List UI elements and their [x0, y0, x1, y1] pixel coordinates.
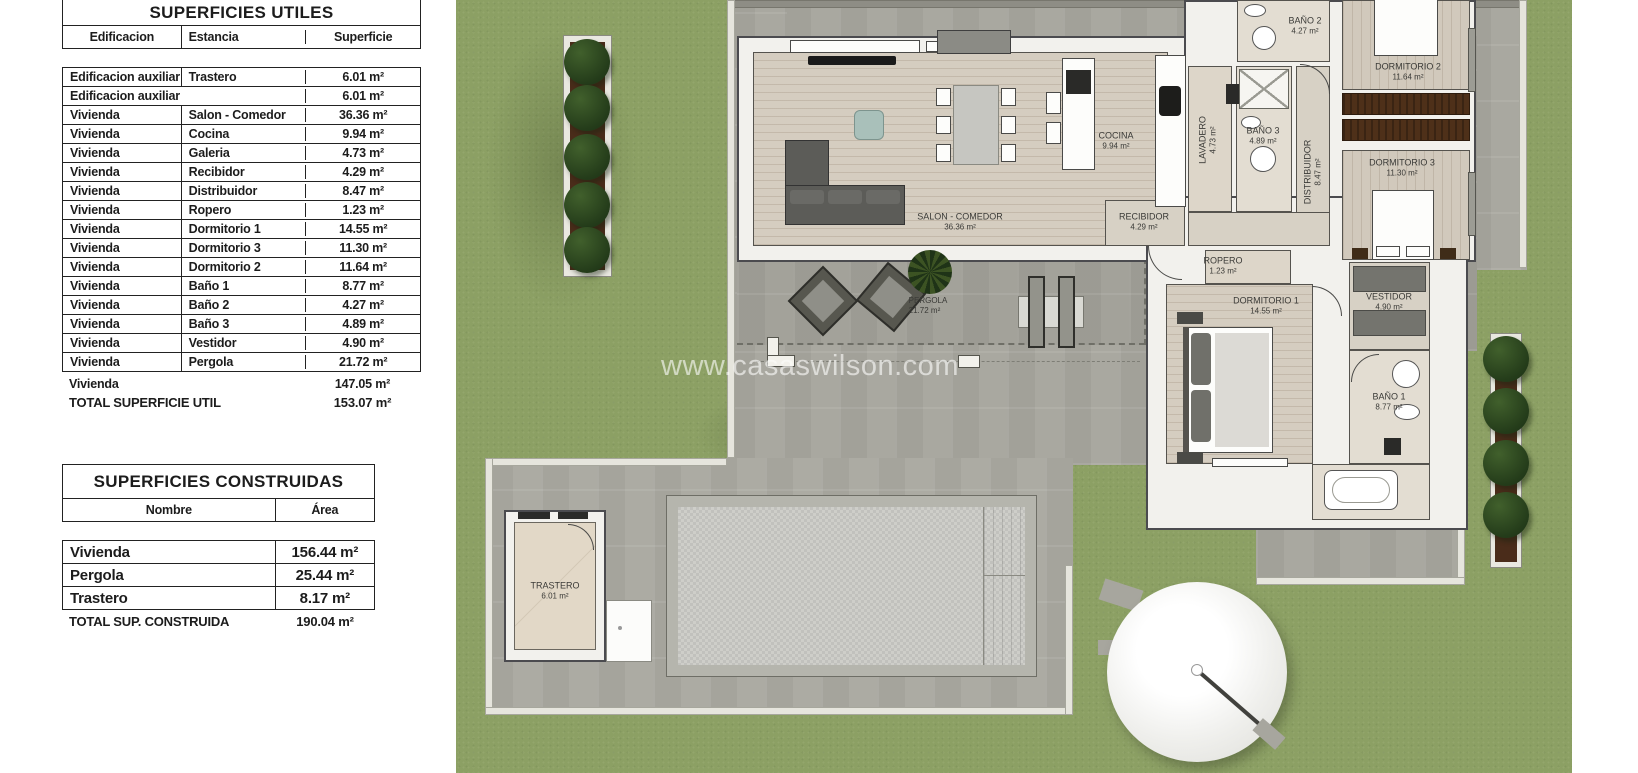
- total-value: 190.04 m²: [275, 614, 375, 629]
- table-row: ViviendaDormitorio 211.64 m²: [62, 257, 421, 277]
- room-area: 14.55 m²: [1233, 307, 1299, 317]
- cell-estancia: Cocina: [181, 125, 306, 143]
- cell-area: 8.17 m²: [275, 587, 374, 609]
- equipment-box: [606, 600, 652, 662]
- tree: [564, 134, 610, 180]
- cell-area: 156.44 m²: [275, 541, 374, 563]
- total-value: 153.07 m²: [305, 395, 420, 410]
- bar-stool: [1046, 122, 1061, 144]
- room-label-bano-2: BAÑO 2 4.27 m²: [1288, 15, 1321, 36]
- cell-estancia: Pergola: [181, 353, 306, 371]
- tree: [1483, 336, 1529, 382]
- room-name: DISTRIBUIDOR: [1302, 140, 1313, 205]
- bed: [1374, 0, 1438, 56]
- sun-lounger: [1058, 276, 1075, 348]
- subtotal-value: 147.05 m²: [305, 377, 420, 391]
- table-row: ViviendaBaño 24.27 m²: [62, 295, 421, 315]
- total-label: TOTAL SUPERFICIE UTIL: [62, 395, 305, 410]
- pillow: [1406, 246, 1430, 257]
- table-header-row: Edificacion Estancia Superficie: [62, 26, 421, 49]
- cell-superficie: 11.30 m²: [305, 241, 420, 255]
- cell-estancia: Galeria: [181, 144, 306, 162]
- entry-canopy: [937, 30, 1011, 54]
- room-label-dormitorio-2: DORMITORIO 2 11.64 m²: [1375, 61, 1441, 82]
- cell-superficie: 14.55 m²: [305, 222, 420, 236]
- room-area: 8.77 m²: [1372, 403, 1405, 413]
- washbasin: [1392, 360, 1420, 388]
- patio-edge-bottom: [485, 707, 1073, 715]
- cell-edificacion: Vivienda: [63, 317, 181, 331]
- cell-edificacion: Vivienda: [63, 298, 181, 312]
- room-name: DORMITORIO 1: [1233, 295, 1299, 306]
- dining-chair: [1001, 144, 1016, 162]
- table-row: ViviendaVestidor4.90 m²: [62, 333, 421, 353]
- table-row: Edificacion auxiliarTrastero6.01 m²: [62, 67, 421, 87]
- room-name: RECIBIDOR: [1119, 211, 1169, 222]
- dining-chair: [936, 116, 951, 134]
- cell-superficie: 36.36 m²: [305, 108, 420, 122]
- cell-estancia: Recibidor: [181, 163, 306, 181]
- room-label-distribuidor: DISTRIBUIDOR 8.47 m²: [1302, 140, 1323, 205]
- cell-nombre: Vivienda: [63, 544, 275, 561]
- room-area: 4.27 m²: [1288, 27, 1321, 37]
- room-area: 1.23 m²: [1203, 267, 1242, 277]
- room-name: VESTIDOR: [1366, 291, 1412, 302]
- room-name: COCINA: [1098, 130, 1133, 141]
- lintel: [558, 512, 588, 519]
- tv: [808, 56, 896, 65]
- patio-edge-right: [1519, 0, 1527, 268]
- parasol-base: [1252, 718, 1285, 750]
- cell-estancia: Dormitorio 1: [181, 220, 306, 238]
- total-row: TOTAL SUPERFICIE UTIL 153.07 m²: [62, 391, 421, 410]
- wardrobe: [1353, 266, 1426, 292]
- wardrobe: [1353, 310, 1426, 336]
- cell-estancia: Vestidor: [181, 334, 306, 352]
- room-hallway: [1188, 212, 1330, 246]
- equipment-dot: [618, 626, 622, 630]
- pergola-post: [958, 355, 980, 368]
- nightstand: [1177, 312, 1203, 324]
- window: [1468, 28, 1476, 92]
- table-row: Edificacion auxiliar6.01 m²: [62, 86, 421, 106]
- header-superficie: Superficie: [305, 30, 420, 44]
- table-row: ViviendaGaleria4.73 m²: [62, 143, 421, 163]
- tree: [1483, 492, 1529, 538]
- room-label-bano-3: BAÑO 3 4.89 m²: [1246, 125, 1279, 146]
- header-edificacion: Edificacion: [63, 30, 181, 44]
- tree: [1483, 388, 1529, 434]
- cooktop: [1066, 70, 1091, 94]
- cell-edificacion: Vivienda: [63, 355, 181, 369]
- site-plan: SALON - COMEDOR 36.36 m² COCINA 9.94 m² …: [456, 0, 1572, 773]
- cell-superficie: 4.89 m²: [305, 317, 420, 331]
- superficies-construidas-table: SUPERFICIES CONSTRUIDAS Nombre Área Vivi…: [62, 464, 375, 629]
- table-row: ViviendaPergola21.72 m²: [62, 352, 421, 372]
- cell-estancia: Salon - Comedor: [181, 106, 306, 124]
- table-row: Trastero8.17 m²: [62, 586, 375, 610]
- tree: [564, 39, 610, 85]
- cell-edificacion: Vivienda: [63, 279, 181, 293]
- room-name: BAÑO 2: [1288, 15, 1321, 26]
- tree: [564, 182, 610, 228]
- cell-edificacion: Vivienda: [63, 260, 181, 274]
- kitchen-counter: [1155, 55, 1186, 207]
- room-name: DORMITORIO 3: [1369, 157, 1435, 168]
- cell-edificacion: Edificacion auxiliar: [63, 70, 181, 84]
- sofa-cushion: [866, 190, 900, 204]
- room-name: PERGOLA: [909, 296, 948, 306]
- watermark: www.casaswilson.com: [661, 350, 959, 383]
- patio-edge-band-bottom: [1256, 577, 1465, 585]
- subtotal-label: Vivienda: [62, 377, 305, 391]
- washbasin: [1252, 26, 1276, 50]
- table-header-row: Nombre Área: [62, 499, 375, 522]
- wardrobe: [1342, 119, 1470, 141]
- kitchen-sink: [1159, 86, 1181, 116]
- table-gap: [62, 49, 421, 68]
- room-area: 11.30 m²: [1369, 169, 1435, 179]
- tree: [564, 227, 610, 273]
- tree-shadow: [486, 30, 636, 310]
- room-label-vestidor: VESTIDOR 4.90 m²: [1366, 291, 1412, 312]
- table-row: ViviendaDormitorio 311.30 m²: [62, 238, 421, 258]
- patio-edge-pool-left: [485, 458, 493, 715]
- dining-chair: [936, 88, 951, 106]
- room-name: BAÑO 3: [1246, 125, 1279, 136]
- dining-table: [953, 85, 999, 165]
- patio-edge-left: [727, 0, 735, 458]
- table-row: ViviendaDistribuidor8.47 m²: [62, 181, 421, 201]
- subtotal-row: Vivienda 147.05 m²: [62, 372, 421, 391]
- cell-edificacion: Vivienda: [63, 127, 181, 141]
- pillow: [1191, 333, 1211, 385]
- shower: [1239, 69, 1289, 109]
- rug: [854, 110, 884, 140]
- window: [1212, 458, 1288, 467]
- cell-estancia: Ropero: [181, 201, 306, 219]
- room-name: BAÑO 1: [1372, 391, 1405, 402]
- table-gap: [62, 522, 375, 541]
- cell-edificacion: Vivienda: [63, 184, 181, 198]
- cell-superficie: 8.47 m²: [305, 184, 420, 198]
- cell-edificacion: Edificacion auxiliar: [63, 89, 181, 103]
- pool: [678, 507, 1025, 665]
- room-area: 6.01 m²: [530, 592, 579, 602]
- nightstand: [1440, 248, 1456, 259]
- room-area: 11.64 m²: [1375, 73, 1441, 83]
- table-row: ViviendaRecibidor4.29 m²: [62, 162, 421, 182]
- room-label-pergola: PERGOLA 21.72 m²: [909, 296, 948, 316]
- shower-drain: [1384, 438, 1401, 455]
- cell-superficie: 4.73 m²: [305, 146, 420, 160]
- room-name: TRASTERO: [530, 580, 579, 591]
- dining-chair: [1001, 88, 1016, 106]
- nightstand: [1352, 248, 1368, 259]
- cell-superficie: 1.23 m²: [305, 203, 420, 217]
- room-label-lavadero: LAVADERO 4.73 m²: [1197, 116, 1218, 164]
- window: [790, 40, 920, 53]
- room-label-trastero: TRASTERO 6.01 m²: [530, 580, 579, 601]
- plant: [908, 250, 952, 294]
- pool-step-line: [983, 575, 1025, 576]
- cell-superficie: 4.90 m²: [305, 336, 420, 350]
- table-row: ViviendaBaño 18.77 m²: [62, 276, 421, 296]
- room-name: LAVADERO: [1197, 116, 1208, 164]
- pool-steps: [983, 507, 1025, 665]
- sun-lounger: [1028, 276, 1045, 348]
- cell-superficie: 6.01 m²: [305, 70, 420, 84]
- blanket: [1215, 333, 1269, 447]
- headboard: [1183, 327, 1189, 453]
- room-label-dormitorio-1: DORMITORIO 1 14.55 m²: [1233, 295, 1299, 316]
- cell-edificacion: Vivienda: [63, 165, 181, 179]
- pergola-boundary-line: [737, 343, 1145, 345]
- total-row: TOTAL SUP. CONSTRUIDA 190.04 m²: [62, 610, 375, 629]
- room-name: ROPERO: [1203, 255, 1242, 266]
- room-area: 4.90 m²: [1366, 303, 1412, 313]
- cell-edificacion: Vivienda: [63, 203, 181, 217]
- nightstand: [1177, 452, 1203, 464]
- cell-nombre: Pergola: [63, 567, 275, 584]
- cell-superficie: 21.72 m²: [305, 355, 420, 369]
- table-row: ViviendaSalon - Comedor36.36 m²: [62, 105, 421, 125]
- patio-edge-step: [485, 458, 727, 466]
- table-row: Pergola25.44 m²: [62, 563, 375, 587]
- cell-estancia: Dormitorio 3: [181, 239, 306, 257]
- room-area: 21.72 m²: [909, 306, 948, 316]
- room-area: 36.36 m²: [917, 223, 1003, 233]
- sofa-cushion: [828, 190, 862, 204]
- parasol-hub: [1191, 664, 1203, 676]
- cell-edificacion: Vivienda: [63, 222, 181, 236]
- cell-estancia: Baño 3: [181, 315, 306, 333]
- cell-estancia: Trastero: [181, 68, 306, 86]
- superficies-utiles-table: SUPERFICIES UTILES Edificacion Estancia …: [62, 0, 421, 410]
- cell-edificacion: Vivienda: [63, 146, 181, 160]
- cell-estancia: [181, 87, 306, 105]
- cell-estancia: Baño 1: [181, 277, 306, 295]
- table-row: ViviendaDormitorio 114.55 m²: [62, 219, 421, 239]
- table-row: Vivienda156.44 m²: [62, 540, 375, 564]
- room-label-ropero: ROPERO 1.23 m²: [1203, 255, 1242, 276]
- bathtub-inner: [1332, 477, 1390, 503]
- table-title: SUPERFICIES CONSTRUIDAS: [62, 464, 375, 499]
- room-label-bano-1: BAÑO 1 8.77 m²: [1372, 391, 1405, 412]
- table-title: SUPERFICIES UTILES: [62, 0, 421, 26]
- cell-superficie: 9.94 m²: [305, 127, 420, 141]
- room-area: 8.47 m²: [1314, 140, 1324, 205]
- pillow: [1376, 246, 1400, 257]
- cell-superficie: 4.27 m²: [305, 298, 420, 312]
- toilet: [1244, 4, 1266, 17]
- cell-estancia: Baño 2: [181, 296, 306, 314]
- wardrobe: [1342, 93, 1470, 115]
- cell-estancia: Distribuidor: [181, 182, 306, 200]
- total-label: TOTAL SUP. CONSTRUIDA: [62, 614, 275, 629]
- pillow: [1191, 390, 1211, 442]
- cell-nombre: Trastero: [63, 590, 275, 607]
- table-row: ViviendaCocina9.94 m²: [62, 124, 421, 144]
- cell-superficie: 4.29 m²: [305, 165, 420, 179]
- washbasin: [1250, 146, 1276, 172]
- patio-edge-pool-right: [1065, 565, 1073, 715]
- dining-chair: [1001, 116, 1016, 134]
- room-name: SALON - COMEDOR: [917, 211, 1003, 222]
- table-row: ViviendaBaño 34.89 m²: [62, 314, 421, 334]
- window: [1468, 172, 1476, 236]
- cell-estancia: Dormitorio 2: [181, 258, 306, 276]
- cell-superficie: 6.01 m²: [305, 89, 420, 103]
- cell-edificacion: Vivienda: [63, 336, 181, 350]
- room-label-salon-comedor: SALON - COMEDOR 36.36 m²: [917, 211, 1003, 232]
- header-area: Área: [275, 499, 374, 521]
- bar-stool: [1046, 92, 1061, 114]
- sofa-cushion: [790, 190, 824, 204]
- table-row: ViviendaRopero1.23 m²: [62, 200, 421, 220]
- room-label-cocina: COCINA 9.94 m²: [1098, 130, 1133, 151]
- cell-edificacion: Vivienda: [63, 108, 181, 122]
- tree: [564, 85, 610, 131]
- room-area: 4.89 m²: [1246, 137, 1279, 147]
- room-area: 4.29 m²: [1119, 223, 1169, 233]
- cell-superficie: 8.77 m²: [305, 279, 420, 293]
- room-label-recibidor: RECIBIDOR 4.29 m²: [1119, 211, 1169, 232]
- cell-superficie: 11.64 m²: [305, 260, 420, 274]
- cell-edificacion: Vivienda: [63, 241, 181, 255]
- room-name: DORMITORIO 2: [1375, 61, 1441, 72]
- room-label-dormitorio-3: DORMITORIO 3 11.30 m²: [1369, 157, 1435, 178]
- header-nombre: Nombre: [63, 503, 275, 517]
- dining-chair: [936, 144, 951, 162]
- tree: [1483, 440, 1529, 486]
- room-area: 9.94 m²: [1098, 142, 1133, 152]
- lintel: [518, 512, 550, 519]
- cell-area: 25.44 m²: [275, 564, 374, 586]
- room-area: 4.73 m²: [1209, 116, 1219, 164]
- header-estancia: Estancia: [181, 26, 306, 48]
